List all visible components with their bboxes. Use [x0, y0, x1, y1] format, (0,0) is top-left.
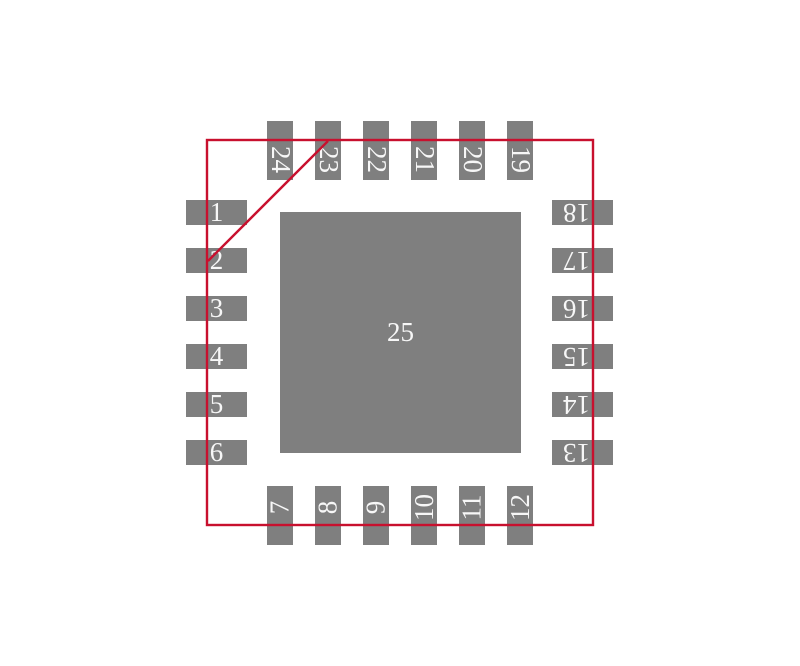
pad-number: 4 — [210, 343, 224, 370]
pad-10: 10 — [411, 486, 437, 545]
pad-13: 13 — [552, 440, 613, 465]
pad-8: 8 — [315, 486, 341, 545]
pad-number: 1 — [210, 199, 224, 226]
pad-number: 24 — [267, 146, 294, 173]
pad-18: 18 — [552, 200, 613, 225]
pad-number: 11 — [459, 495, 486, 521]
pad-7: 7 — [267, 486, 293, 545]
pad-20: 20 — [459, 121, 485, 180]
pad-3: 3 — [186, 296, 247, 321]
pad-12: 12 — [507, 486, 533, 545]
pad-24: 24 — [267, 121, 293, 180]
pad-number: 10 — [411, 494, 438, 521]
pad-number: 12 — [507, 494, 534, 521]
pad-number: 2 — [210, 247, 224, 274]
pad-19: 19 — [507, 121, 533, 180]
pad-number: 23 — [315, 146, 342, 173]
pad-number: 5 — [210, 391, 224, 418]
pad-number: 15 — [563, 343, 590, 370]
pad-1: 1 — [186, 200, 247, 225]
pad-5: 5 — [186, 392, 247, 417]
pad-number: 13 — [563, 439, 590, 466]
pad-number: 25 — [387, 319, 414, 346]
pad-16: 16 — [552, 296, 613, 321]
pad-number: 16 — [563, 295, 590, 322]
pad-number: 20 — [459, 146, 486, 173]
footprint-diagram: 24 23 22 21 20 19 1 2 3 4 5 6 18 17 16 1… — [0, 0, 800, 666]
pad-14: 14 — [552, 392, 613, 417]
pad-21: 21 — [411, 121, 437, 180]
pad-6: 6 — [186, 440, 247, 465]
pad-number: 17 — [563, 247, 590, 274]
pad-number: 8 — [315, 501, 342, 515]
pad-15: 15 — [552, 344, 613, 369]
pad-4: 4 — [186, 344, 247, 369]
pad-11: 11 — [459, 486, 485, 545]
pad-17: 17 — [552, 248, 613, 273]
pad-number: 22 — [363, 146, 390, 173]
pad-number: 6 — [210, 439, 224, 466]
pad-number: 7 — [267, 501, 294, 515]
pad-23: 23 — [315, 121, 341, 180]
thermal-pad-25: 25 — [280, 212, 521, 453]
pad-number: 21 — [411, 146, 438, 173]
pad-number: 19 — [507, 146, 534, 173]
pad-9: 9 — [363, 486, 389, 545]
pad-22: 22 — [363, 121, 389, 180]
pad-number: 18 — [563, 199, 590, 226]
pad-number: 3 — [210, 295, 224, 322]
pad-number: 14 — [563, 391, 590, 418]
pad-number: 9 — [363, 501, 390, 515]
pad-2: 2 — [186, 248, 247, 273]
